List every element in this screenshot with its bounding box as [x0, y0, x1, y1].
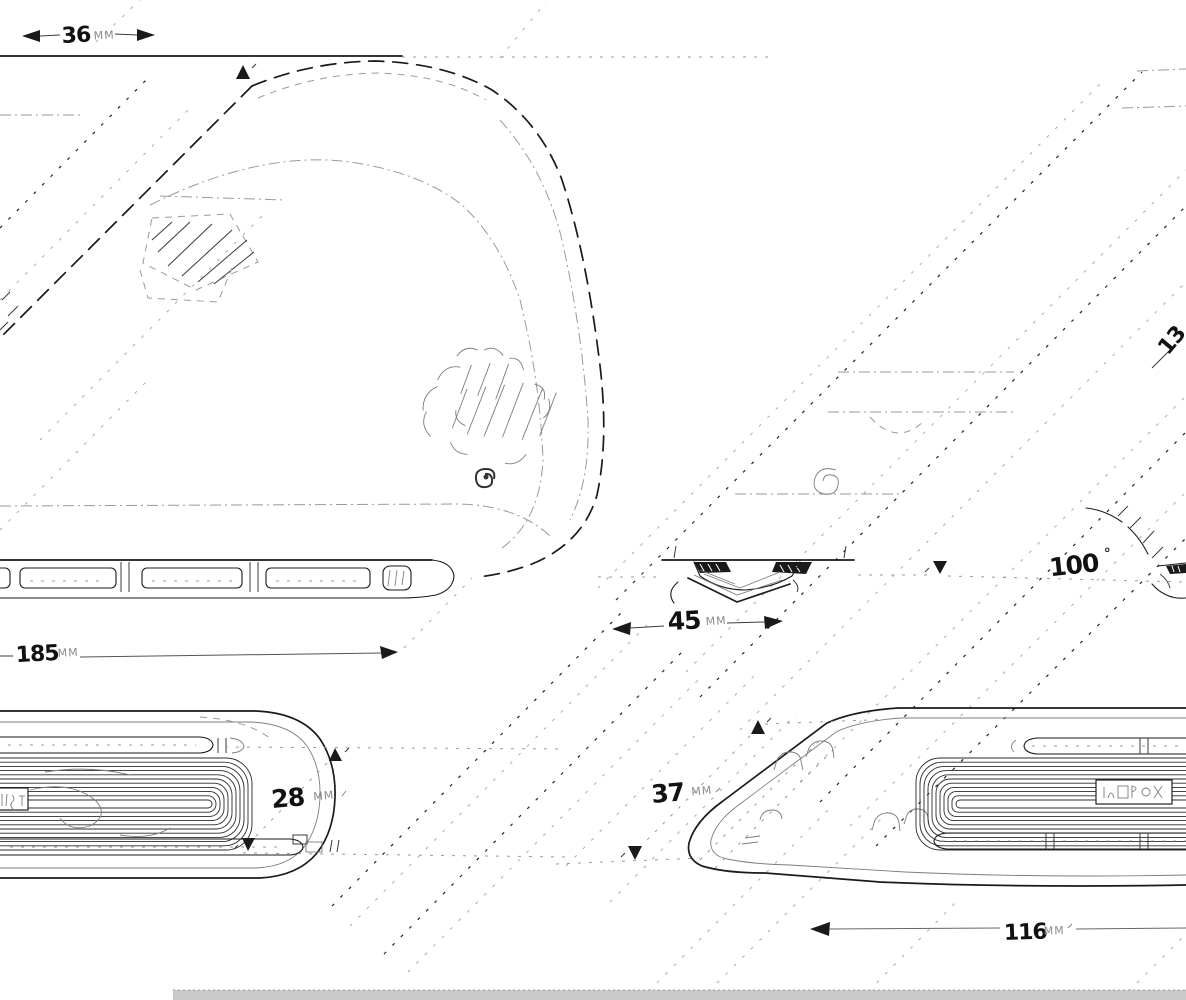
regulatory-label-plate: [0, 788, 28, 810]
dimension-bottom-length: 116 MM: [810, 919, 1186, 946]
small-swirl-mark: [476, 469, 494, 487]
dim-185-label: 185 MM: [15, 640, 79, 668]
upper-diagonal-arrow: [236, 64, 256, 79]
dim-28-label: 28 MM: [270, 780, 335, 814]
top-foot-strip: [0, 737, 244, 753]
dim-100-label: 100 °: [1048, 546, 1114, 582]
top-view: [0, 61, 604, 598]
front-edge-feet-strip: [0, 560, 454, 598]
dimension-stand-angle: 100 °: [1048, 546, 1114, 582]
technical-drawing-canvas: 36 MM: [0, 0, 1186, 1000]
illegible-cutoff-marks: [0, 292, 18, 330]
spiral-logo-mark: [814, 469, 838, 495]
baseline-down-arrow: [925, 561, 947, 574]
dimension-top-width: 36 MM: [0, 21, 770, 57]
snap-features: [742, 741, 929, 844]
bottom-foot-strip-right: [934, 833, 1186, 849]
right-side-view-partial: 13: [1086, 69, 1186, 598]
dimension-side-depth: 45 MM: [612, 604, 783, 636]
bottom-view-right: [689, 708, 1186, 886]
dimension-left-height: 28 MM: [225, 747, 568, 857]
bottom-foot-strip: [0, 835, 339, 855]
dim-13-partial-label: 13: [1153, 322, 1186, 360]
dim-45-label: 45 MM: [667, 604, 727, 636]
hatched-region: [140, 214, 258, 302]
dim-116-label: 116 MM: [1003, 919, 1065, 946]
regulatory-label-plate-right: [1096, 780, 1172, 804]
dimension-front-length: 185 MM: [0, 640, 398, 668]
dim-37-label: 37 MM: [650, 775, 713, 809]
diagonal-cutoff-dimension: 13: [1152, 322, 1186, 368]
dim-36-label: 36 MM: [61, 21, 115, 49]
footer-bar: [173, 990, 1186, 1000]
top-foot-strip-right: [1011, 738, 1186, 754]
textured-grille-area: [0, 758, 252, 850]
dimension-right-height: 37 MM: [556, 718, 895, 864]
drawing-svg: 36 MM: [0, 0, 1186, 1000]
